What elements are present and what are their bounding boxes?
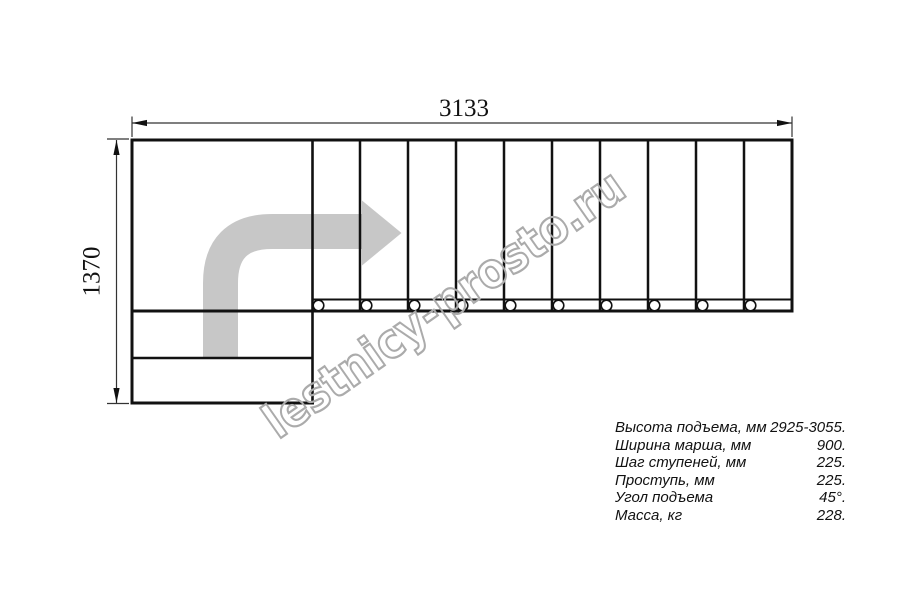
baluster-circles [313, 300, 756, 311]
baluster-circle [361, 300, 372, 311]
baluster-circle [601, 300, 612, 311]
baluster-circle [553, 300, 564, 311]
spec-row-tread: Проступь, мм 225. [615, 472, 846, 490]
height-dimension: 1370 [79, 139, 130, 404]
spec-label: Проступь, мм [615, 472, 715, 490]
dim-arrowhead-bottom [113, 388, 119, 403]
spec-row-flight-width: Ширина марша, мм 900. [615, 437, 846, 455]
baluster-circle [313, 300, 324, 311]
baluster-circle [505, 300, 516, 311]
spec-row-mass: Масса, кг 228. [615, 507, 846, 525]
direction-arrow-shaft [221, 232, 363, 359]
dimension-label-width: 3133 [439, 95, 489, 122]
baluster-circle [745, 300, 756, 311]
spec-row-rise-height: Высота подъема, мм 2925-3055. [615, 419, 846, 437]
spec-value: 2925-3055. [770, 419, 846, 437]
spec-label: Угол подъема [615, 489, 713, 507]
dim-arrowhead-left [132, 120, 147, 126]
spec-label: Ширина марша, мм [615, 437, 751, 455]
baluster-circle [697, 300, 708, 311]
spec-row-angle: Угол подъема 45°. [615, 489, 846, 507]
dim-arrowhead-right [777, 120, 792, 126]
spec-value: 225. [817, 472, 846, 490]
spec-row-step-pitch: Шаг ступеней, мм 225. [615, 454, 846, 472]
spec-label: Высота подъема, мм [615, 419, 767, 437]
spec-value: 228. [817, 507, 846, 525]
baluster-circle [649, 300, 660, 311]
dim-arrowhead-top [113, 140, 119, 155]
spec-value: 225. [817, 454, 846, 472]
dimension-label-height: 1370 [79, 247, 106, 297]
width-dimension: 3133 [132, 95, 792, 137]
direction-arrow-head [362, 201, 402, 266]
stair-drawing-page: 3133 1370 lestnicy-prosto.ru Высота подъ… [0, 0, 900, 600]
specs-table: Высота подъема, мм 2925-3055. Ширина мар… [615, 419, 846, 524]
spec-value: 900. [817, 437, 846, 455]
spec-value: 45°. [819, 489, 846, 507]
spec-label: Шаг ступеней, мм [615, 454, 746, 472]
spec-label: Масса, кг [615, 507, 682, 525]
watermark-text: lestnicy-prosto.ru [253, 158, 636, 449]
